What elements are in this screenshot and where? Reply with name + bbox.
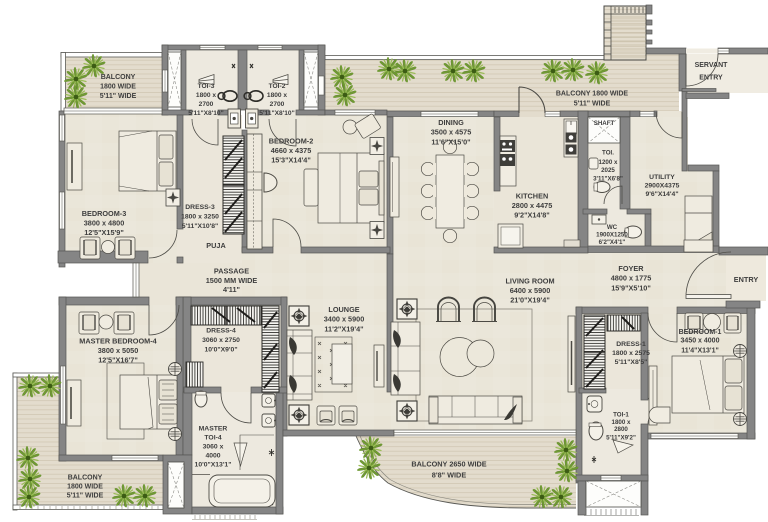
svg-text:KITCHEN: KITCHEN — [516, 192, 548, 201]
svg-text:2025: 2025 — [601, 167, 615, 174]
svg-text:TOI.: TOI. — [602, 150, 614, 157]
svg-text:21'0"X19'4": 21'0"X19'4" — [510, 296, 550, 305]
svg-text:2800 x 4475: 2800 x 4475 — [512, 201, 553, 210]
svg-text:TOI-4: TOI-4 — [204, 435, 221, 442]
svg-text:1800 WIDE: 1800 WIDE — [100, 84, 136, 91]
svg-text:MASTER: MASTER — [199, 426, 228, 433]
svg-text:DRESS-4: DRESS-4 — [206, 328, 236, 335]
svg-text:5'11"X8'5": 5'11"X8'5" — [615, 359, 648, 366]
svg-text:BEDROOM-1: BEDROOM-1 — [679, 329, 722, 336]
svg-text:5'11" WIDE: 5'11" WIDE — [100, 93, 137, 100]
svg-text:10'0"X13'1": 10'0"X13'1" — [195, 462, 232, 469]
svg-text:5'11"X8'10": 5'11"X8'10" — [188, 110, 223, 117]
svg-text:4000: 4000 — [205, 453, 220, 460]
svg-text:DRESS-3: DRESS-3 — [185, 204, 215, 211]
svg-text:UTILITY: UTILITY — [649, 174, 675, 181]
svg-text:9'2"X14'8": 9'2"X14'8" — [514, 211, 550, 220]
svg-text:1800 x: 1800 x — [196, 92, 217, 99]
svg-text:15'9"X5'10": 15'9"X5'10" — [611, 284, 651, 293]
svg-text:6'2"X4'1": 6'2"X4'1" — [599, 239, 626, 246]
svg-text:BALCONY 1800 WIDE: BALCONY 1800 WIDE — [556, 91, 629, 98]
svg-text:1500 MM WIDE: 1500 MM WIDE — [206, 276, 258, 285]
svg-text:TOI-1: TOI-1 — [613, 412, 629, 419]
svg-text:TOI-3: TOI-3 — [198, 83, 215, 90]
svg-text:3'11"X6'8": 3'11"X6'8" — [593, 176, 623, 183]
svg-text:MASTER BEDROOM-4: MASTER BEDROOM-4 — [79, 337, 157, 346]
svg-text:3800 x 4800: 3800 x 4800 — [84, 219, 125, 228]
svg-text:WC: WC — [607, 224, 618, 231]
svg-text:8'8" WIDE: 8'8" WIDE — [432, 471, 467, 480]
svg-text:12'5"X16'7": 12'5"X16'7" — [98, 356, 138, 365]
svg-text:5'11"X10'8": 5'11"X10'8" — [182, 223, 219, 230]
svg-text:10'0"X9'0": 10'0"X9'0" — [204, 347, 237, 354]
svg-text:ENTRY: ENTRY — [699, 75, 723, 82]
svg-text:3060 x 2750: 3060 x 2750 — [202, 337, 240, 344]
svg-text:4660 x 4375: 4660 x 4375 — [271, 146, 312, 155]
svg-text:3500 x 4575: 3500 x 4575 — [431, 128, 472, 137]
svg-text:3060 x: 3060 x — [203, 444, 224, 451]
svg-text:1800 x 2575: 1800 x 2575 — [612, 350, 650, 357]
svg-text:4800 x 1775: 4800 x 1775 — [611, 274, 652, 283]
svg-text:5'11"X8'10": 5'11"X8'10" — [259, 110, 294, 117]
svg-text:3800 x 5050: 3800 x 5050 — [98, 346, 139, 355]
svg-text:3400 x 5900: 3400 x 5900 — [324, 315, 365, 324]
svg-text:SHAFT: SHAFT — [594, 120, 615, 127]
svg-text:1800 WIDE: 1800 WIDE — [67, 484, 103, 491]
svg-text:BEDROOM-2: BEDROOM-2 — [269, 137, 314, 146]
svg-text:11'2"X19'4": 11'2"X19'4" — [324, 325, 363, 334]
svg-text:1800 x: 1800 x — [612, 419, 631, 426]
svg-text:DRESS-1: DRESS-1 — [616, 341, 646, 348]
svg-text:ENTRY: ENTRY — [734, 275, 759, 284]
svg-text:1800 x: 1800 x — [267, 92, 288, 99]
svg-text:SERVANT: SERVANT — [695, 62, 729, 69]
svg-text:BALCONY: BALCONY — [68, 475, 103, 482]
svg-text:9'6"X14'4": 9'6"X14'4" — [645, 191, 678, 198]
svg-text:PUJA: PUJA — [206, 241, 226, 250]
svg-text:TOI-2: TOI-2 — [269, 83, 286, 90]
svg-text:BALCONY 2650 WIDE: BALCONY 2650 WIDE — [411, 460, 486, 469]
svg-text:LOUNGE: LOUNGE — [328, 305, 359, 314]
svg-text:2800: 2800 — [614, 426, 628, 433]
svg-text:4'11": 4'11" — [223, 285, 240, 294]
svg-text:2700: 2700 — [199, 101, 214, 108]
svg-text:5'11" WIDE: 5'11" WIDE — [67, 493, 104, 500]
svg-text:12'5"X15'9": 12'5"X15'9" — [84, 228, 124, 237]
svg-text:2900X4375: 2900X4375 — [645, 183, 680, 190]
svg-text:FOYER: FOYER — [618, 264, 644, 273]
svg-text:3450 x 4000: 3450 x 4000 — [681, 338, 720, 345]
svg-text:PASSAGE: PASSAGE — [214, 267, 249, 276]
svg-text:DINING: DINING — [438, 118, 464, 127]
svg-text:5'11" WIDE: 5'11" WIDE — [574, 101, 611, 108]
svg-text:1900X1250: 1900X1250 — [596, 232, 628, 239]
svg-text:11'4"X13'1": 11'4"X13'1" — [681, 348, 719, 355]
svg-text:BEDROOM-3: BEDROOM-3 — [82, 209, 127, 218]
svg-text:1800 x 3250: 1800 x 3250 — [181, 214, 219, 221]
svg-text:11'6"X15'0": 11'6"X15'0" — [431, 138, 470, 147]
svg-text:5'11"X9'2": 5'11"X9'2" — [606, 435, 636, 442]
svg-text:LIVING ROOM: LIVING ROOM — [505, 277, 554, 286]
svg-text:6400 x 5900: 6400 x 5900 — [510, 286, 551, 295]
svg-text:15'3"X14'4": 15'3"X14'4" — [271, 156, 311, 165]
svg-text:1200 x: 1200 x — [599, 159, 618, 166]
svg-text:BALCONY: BALCONY — [101, 74, 136, 81]
svg-text:2700: 2700 — [270, 101, 285, 108]
